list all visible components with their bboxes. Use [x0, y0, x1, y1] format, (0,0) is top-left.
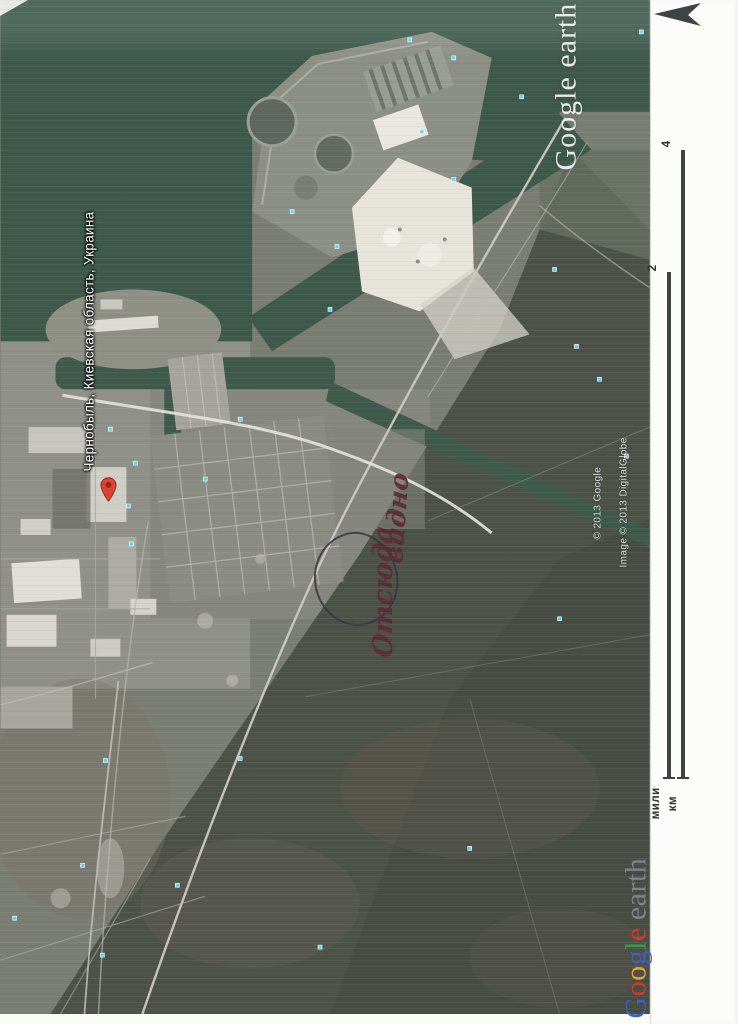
- google-earth-watermark: Google earth: [550, 3, 585, 171]
- print-margin: [650, 0, 738, 1024]
- place-label: Чернобыль, Киевская область, Украина: [81, 212, 97, 472]
- copyright-google: © 2013 Google: [593, 467, 605, 540]
- logo-earth-word: earth: [620, 858, 653, 920]
- scale-label-miles: мили: [650, 787, 663, 819]
- scale-tick-km: [677, 777, 689, 779]
- north-arrow-icon: [653, 2, 703, 28]
- scanned-page: Google earth Чернобыль, Киевская область…: [0, 0, 738, 1024]
- google-logo-word: Google: [620, 927, 653, 1018]
- scale-value-miles: 2: [647, 265, 660, 271]
- scale-tick-miles: [663, 777, 675, 779]
- scale-label-km: км: [667, 796, 680, 811]
- scale-line-miles: [667, 272, 671, 778]
- scale-line-km: [681, 150, 685, 778]
- copyright-digitalglobe: Image © 2013 DigitalGlobe: [619, 437, 631, 567]
- satellite-map: Google earth Чернобыль, Киевская область…: [0, 0, 650, 1014]
- google-earth-logo: Googleearth: [620, 858, 655, 1019]
- placemark-pin-icon: [100, 477, 117, 503]
- scale-value-km: 4: [661, 141, 674, 147]
- handwritten-note-word2: видно: [380, 471, 416, 566]
